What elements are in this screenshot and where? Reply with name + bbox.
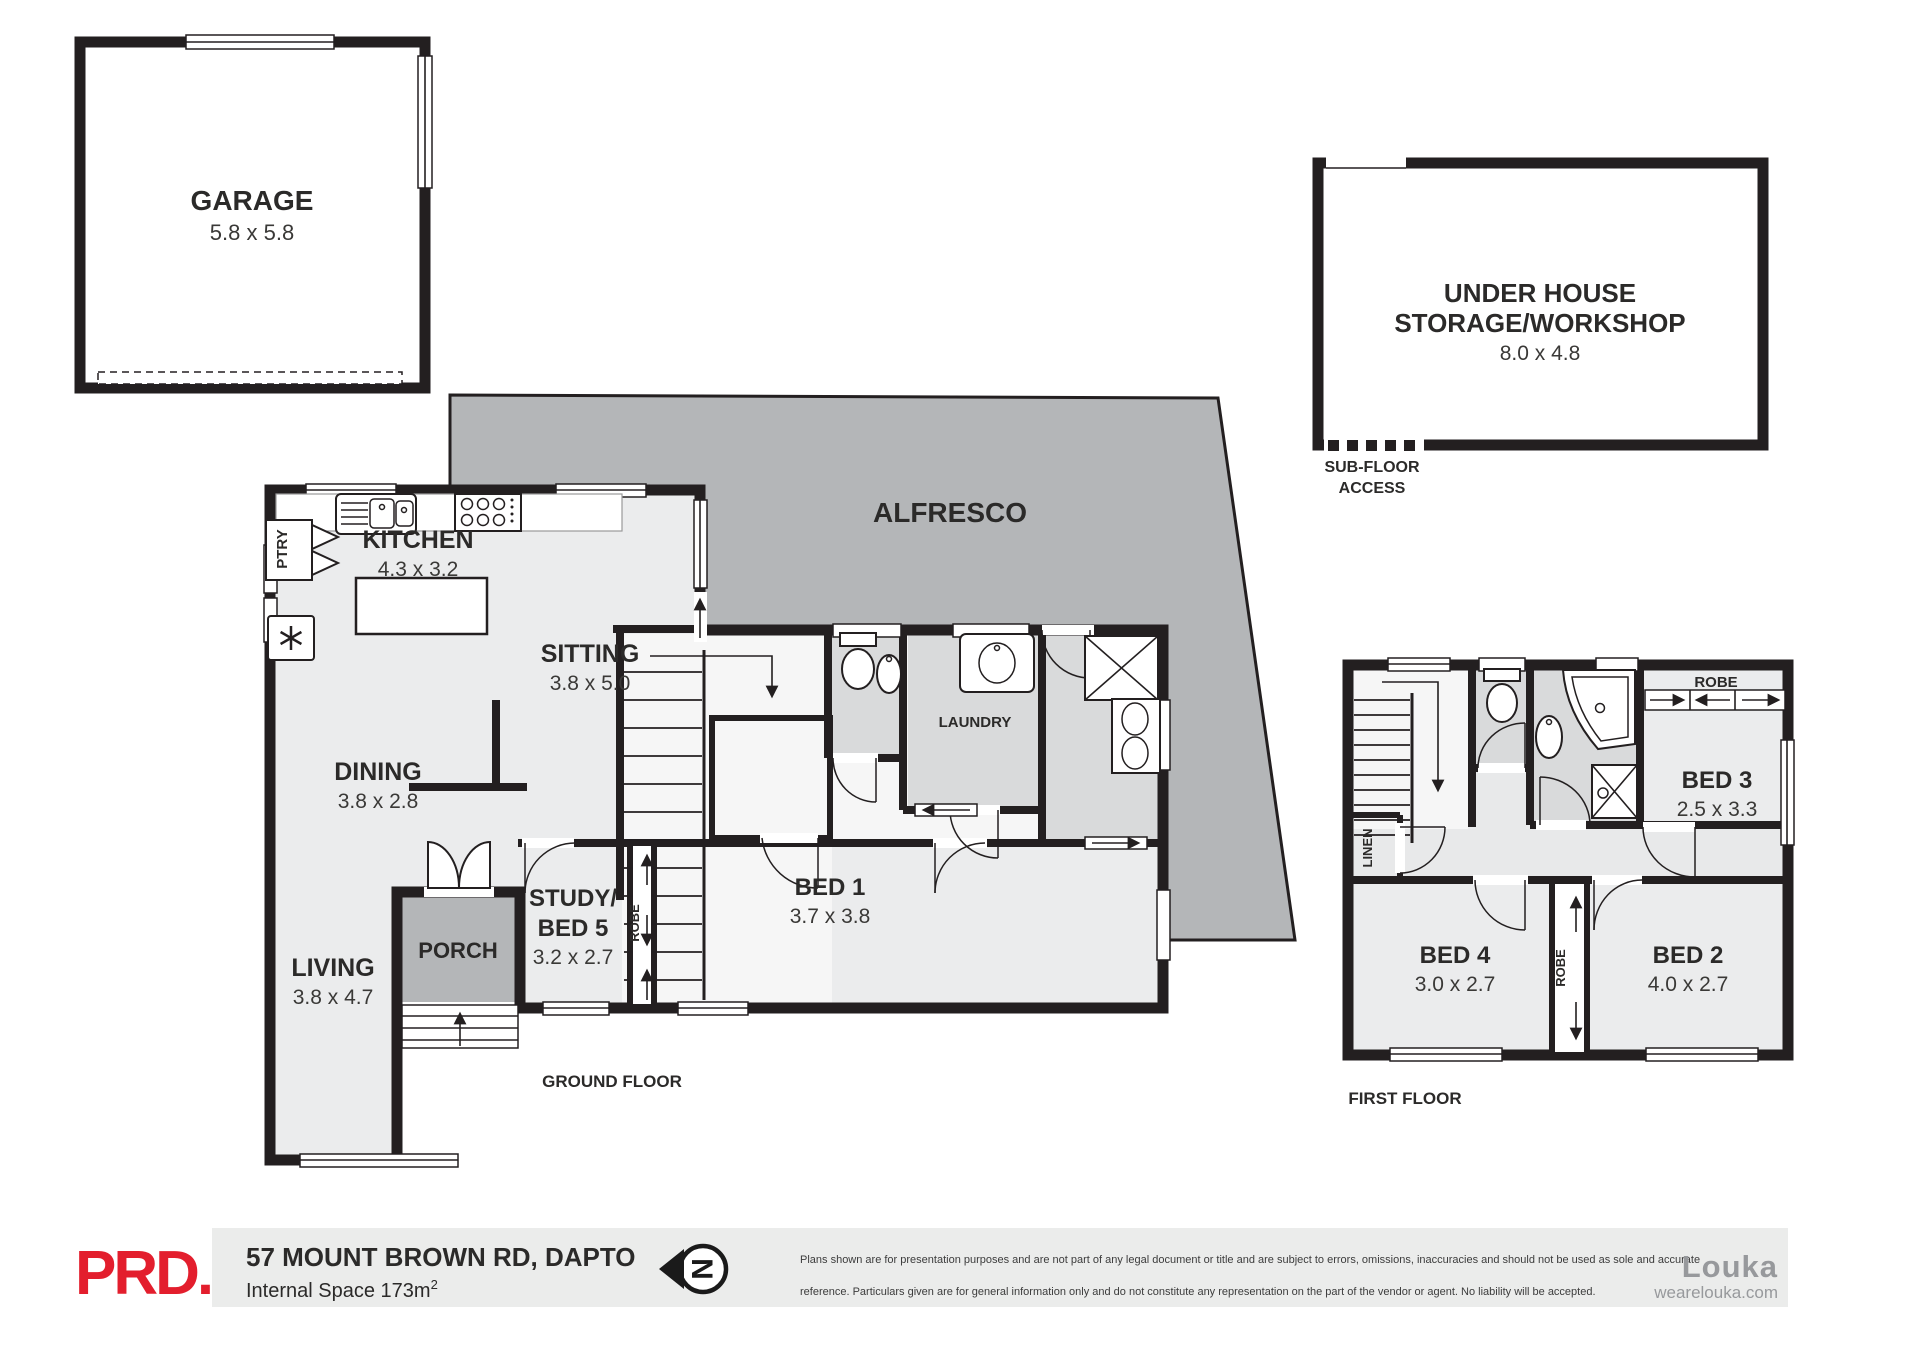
ground-floor-title: GROUND FLOOR xyxy=(542,1072,682,1091)
toilet-icon xyxy=(840,633,876,646)
louka-logo: Louka xyxy=(1682,1249,1778,1284)
kitchen-label: KITCHEN xyxy=(362,526,473,554)
dining-dims: 3.8 x 2.8 xyxy=(338,790,419,813)
porch-label: PORCH xyxy=(418,938,497,963)
floor-plan-sheet: GARAGE 5.8 x 5.8 UNDER HOUSE STORAGE/WOR… xyxy=(0,0,1920,1357)
vanity xyxy=(1112,699,1160,773)
bed4-dims: 3.0 x 2.7 xyxy=(1415,973,1496,996)
study-dims: 3.2 x 2.7 xyxy=(533,946,614,969)
robe-top-label: ROBE xyxy=(1694,674,1737,691)
bed3-label: BED 3 xyxy=(1682,767,1753,794)
kitchen-dims: 4.3 x 3.2 xyxy=(378,558,459,581)
alfresco-label: ALFRESCO xyxy=(873,497,1027,528)
toilet-icon xyxy=(1484,669,1520,681)
under-house-plan: UNDER HOUSE STORAGE/WORKSHOP 8.0 x 4.8 S… xyxy=(1318,156,1763,497)
under-house-dims: 8.0 x 4.8 xyxy=(1500,342,1581,365)
address: 57 MOUNT BROWN RD, DAPTO xyxy=(246,1242,636,1272)
bed3-dims: 2.5 x 3.3 xyxy=(1677,798,1758,821)
prd-logo: PRD. xyxy=(75,1239,211,1308)
garage-dims: 5.8 x 5.8 xyxy=(210,220,294,245)
under-house-label-1: UNDER HOUSE xyxy=(1444,278,1636,308)
disclaimer-line-1: Plans shown are for presentation purpose… xyxy=(800,1254,1700,1266)
floor-plan-drawing: GARAGE 5.8 x 5.8 UNDER HOUSE STORAGE/WOR… xyxy=(0,0,1920,1357)
first-floor-plan: ROBE ROBE BED 3 2.5 x 3.3 BED 4 3.0 x 2.… xyxy=(1348,658,1794,1108)
first-floor-title: FIRST FLOOR xyxy=(1348,1089,1461,1108)
basin-icon xyxy=(877,655,901,693)
living-dims: 3.8 x 4.7 xyxy=(293,986,374,1009)
bed3-robe xyxy=(1645,690,1785,710)
linen-label: LINEN xyxy=(1360,829,1375,868)
robe-label: ROBE xyxy=(627,904,642,942)
study-label-2: BED 5 xyxy=(538,915,609,942)
robe-label: ROBE xyxy=(1553,949,1568,987)
garage-door xyxy=(98,372,402,384)
study-label-1: STUDY/ xyxy=(529,885,617,912)
bed1-label: BED 1 xyxy=(795,874,866,901)
footer: PRD. 57 MOUNT BROWN RD, DAPTO Internal S… xyxy=(75,1228,1788,1308)
sitting-dims: 3.8 x 5.0 xyxy=(550,672,631,695)
sub-floor-access-label-2: ACCESS xyxy=(1339,480,1406,497)
living-label: LIVING xyxy=(291,954,374,982)
sub-floor-access-label-1: SUB-FLOOR xyxy=(1324,459,1420,476)
laundry-label: LAUNDRY xyxy=(939,714,1012,731)
louka-url: wearelouka.com xyxy=(1653,1283,1778,1302)
svg-text:N: N xyxy=(685,1258,718,1280)
under-house-label-2: STORAGE/WORKSHOP xyxy=(1394,308,1685,338)
first-robe: ROBE xyxy=(1553,884,1584,1052)
fridge-icon xyxy=(268,616,314,660)
garage-plan: GARAGE 5.8 x 5.8 xyxy=(80,35,432,388)
bed2-label: BED 2 xyxy=(1653,942,1724,969)
pantry-label: PTRY xyxy=(274,529,291,568)
kitchen-island xyxy=(356,578,487,634)
dining-label: DINING xyxy=(334,758,422,786)
basin-icon xyxy=(1536,716,1562,758)
garage-label: GARAGE xyxy=(191,185,314,216)
internal-space: Internal Space 173m2 xyxy=(246,1277,438,1302)
sitting-label: SITTING xyxy=(541,640,640,668)
bed4-label: BED 4 xyxy=(1420,942,1491,969)
bed2-dims: 4.0 x 2.7 xyxy=(1648,973,1729,996)
porch-steps xyxy=(402,1005,518,1048)
bed1-dims: 3.7 x 3.8 xyxy=(790,905,871,928)
disclaimer-line-2: reference. Particulars given are for gen… xyxy=(800,1286,1596,1298)
